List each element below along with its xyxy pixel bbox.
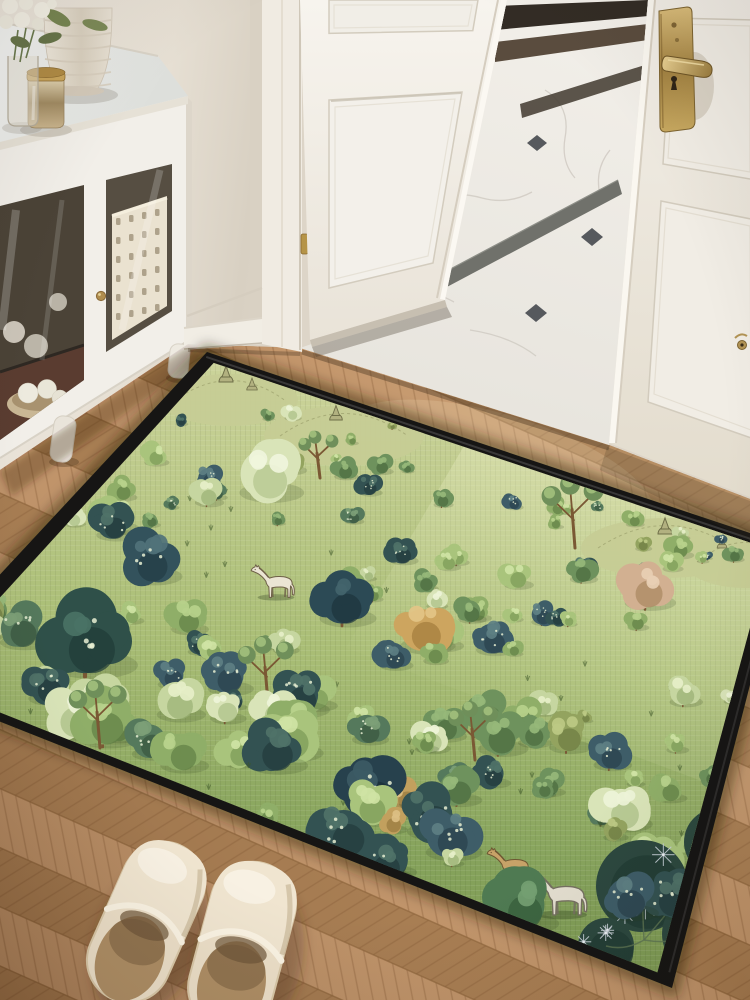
vignette	[0, 0, 750, 1000]
entryway-photo	[0, 0, 750, 1000]
